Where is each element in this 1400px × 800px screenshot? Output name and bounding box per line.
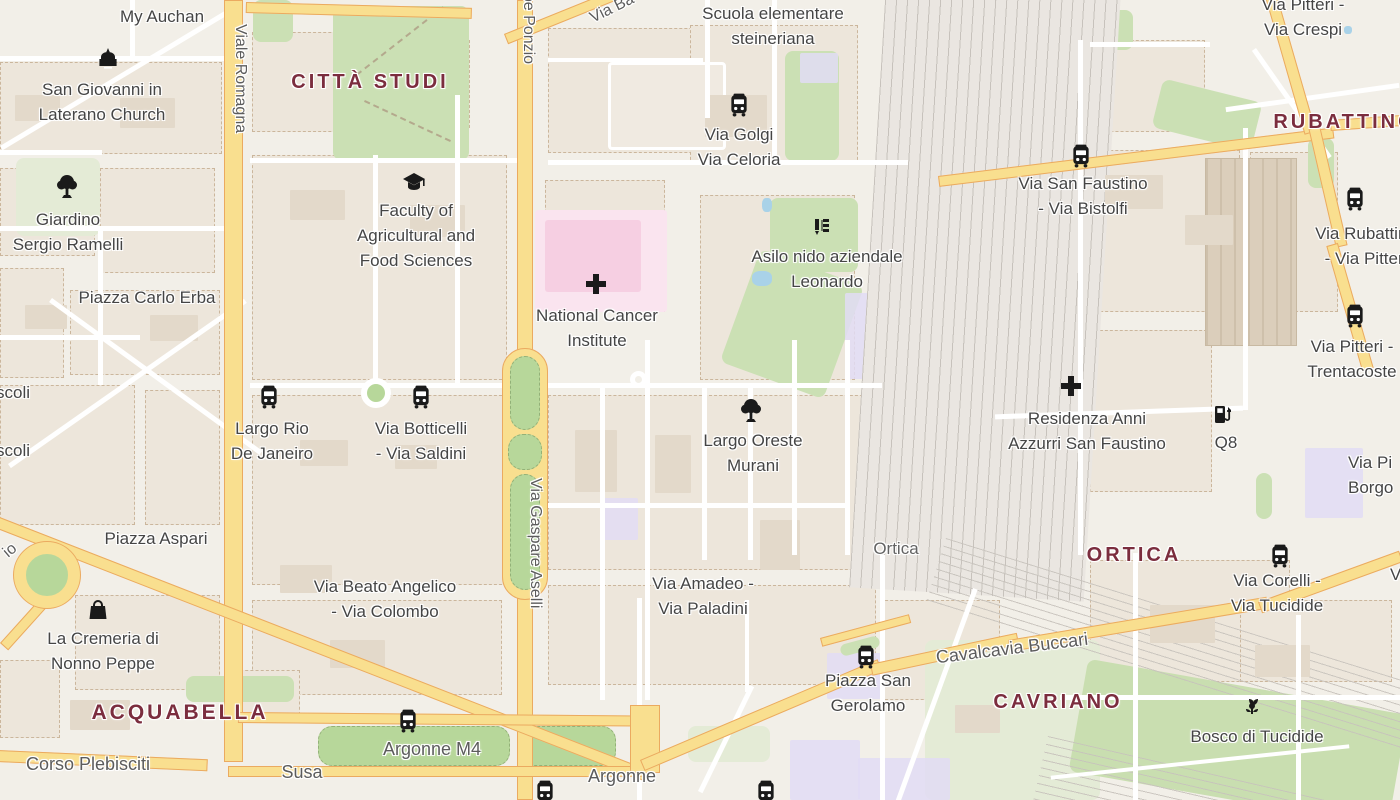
stop-via-botticelli-saldini: Via Botticelli- Via Saldini bbox=[171, 416, 671, 466]
road-label-argonne: Argonne bbox=[372, 764, 872, 789]
stop-scoli-cut-2: scoli bbox=[0, 438, 30, 463]
rd-shape bbox=[1226, 83, 1400, 112]
road-label-argonne-m4: Argonne M4 bbox=[182, 737, 682, 762]
grn-shape bbox=[1256, 473, 1272, 519]
road-label-gaspare-aselli: Via Gaspare Aselli bbox=[523, 478, 548, 608]
poi-national-cancer-institute: National CancerInstitute bbox=[347, 303, 847, 353]
stop-via-golgi-celoria: Via GolgiVia Celoria bbox=[489, 122, 989, 172]
nursery-icon[interactable] bbox=[812, 217, 834, 241]
rndbS-shape bbox=[361, 378, 391, 408]
bld-shape bbox=[1255, 645, 1310, 677]
poi-piazza-carlo-erba: Piazza Carlo Erba bbox=[0, 285, 397, 310]
stop-rubattino-pitteri: Via Rubattino- Via Pitteri bbox=[1116, 221, 1400, 271]
graduation-cap-icon[interactable] bbox=[402, 172, 424, 196]
poi-q8: Q8 bbox=[976, 430, 1400, 455]
poi-bosco-di-tucidide: Bosco di Tucidide bbox=[1007, 724, 1400, 749]
poi-asilo-leonardo: Asilo nido aziendaleLeonardo bbox=[577, 244, 1077, 294]
bus-stop-icon[interactable] bbox=[1344, 304, 1366, 328]
purp-shape bbox=[800, 53, 838, 83]
road-label-viale-romagna: Viale Romagna bbox=[228, 24, 253, 133]
stop-scoli-cut-1: scoli bbox=[0, 380, 30, 405]
rd-shape bbox=[645, 340, 650, 700]
rd-shape bbox=[1078, 40, 1083, 555]
poi-la-cremeria: La Cremeria diNonno Peppe bbox=[0, 626, 353, 676]
map-canvas[interactable]: CITTÀ STUDIACQUABELLAORTICARUBATTINOCAVR… bbox=[0, 0, 1400, 800]
bus-stop-icon[interactable] bbox=[258, 385, 280, 409]
rd-shape bbox=[1090, 42, 1210, 47]
stop-pitteri-crespi: Via Pitteri -Via Crespi bbox=[1053, 0, 1400, 42]
district-acquabella: ACQUABELLA bbox=[0, 700, 430, 725]
place-ortica-small: Ortica bbox=[646, 536, 1146, 561]
label-v-cut: V bbox=[1390, 562, 1400, 587]
poi-my-auchan: My Auchan bbox=[0, 4, 412, 29]
bus-stop-icon[interactable] bbox=[1070, 144, 1092, 168]
rd-shape bbox=[250, 383, 882, 388]
hospital-cross-icon[interactable] bbox=[1059, 374, 1081, 398]
rndbD-shape bbox=[630, 371, 647, 388]
tree-icon[interactable] bbox=[740, 398, 762, 422]
stop-pitteri-trentacoste: Via Pitteri -Trentacoste bbox=[1102, 334, 1400, 384]
shopping-bag-icon[interactable] bbox=[87, 599, 109, 623]
district-rubattino: RUBATTINO bbox=[1095, 110, 1400, 135]
stop-pi-borgo-cut: Via PiBorgo bbox=[1348, 450, 1393, 500]
water-shape bbox=[762, 198, 772, 212]
rd-shape bbox=[0, 150, 102, 155]
bus-stop-icon[interactable] bbox=[1344, 187, 1366, 211]
rd-shape bbox=[548, 58, 703, 62]
church-icon[interactable] bbox=[96, 48, 118, 72]
rd-shape bbox=[548, 503, 848, 508]
rd-shape bbox=[0, 335, 140, 340]
stop-san-faustino-bistolfi: Via San Faustino- Via Bistolfi bbox=[833, 171, 1333, 221]
tree-icon[interactable] bbox=[56, 174, 78, 198]
rd-shape bbox=[250, 158, 522, 163]
poi-san-giovanni-church: San Giovanni inLaterano Church bbox=[0, 77, 352, 127]
poi-piazza-aspari: Piazza Aspari bbox=[0, 526, 406, 551]
bus-stop-icon[interactable] bbox=[410, 385, 432, 409]
bus-stop-icon[interactable] bbox=[728, 93, 750, 117]
